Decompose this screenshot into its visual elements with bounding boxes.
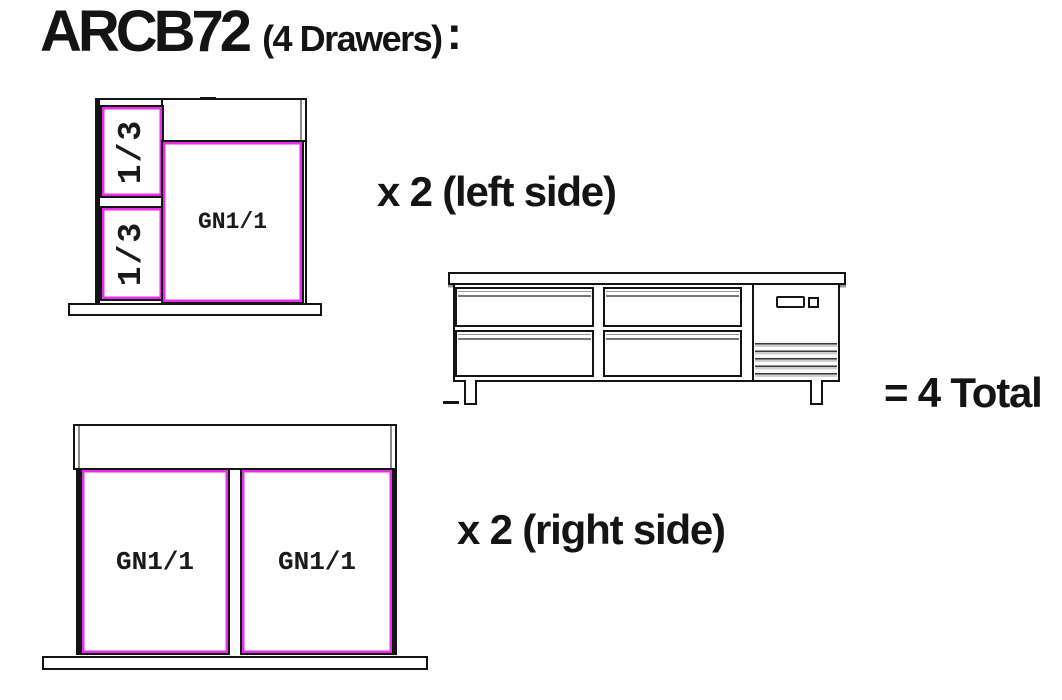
control-panel-button bbox=[808, 297, 819, 308]
pan-size-label: 1/3 bbox=[114, 119, 151, 184]
pan-slot-gn-full: GN1/1 bbox=[161, 140, 304, 304]
right-section-top-rail bbox=[73, 424, 397, 470]
drawer-handle-groove bbox=[458, 334, 591, 340]
model-qualifier: (4 Drawers) bbox=[262, 18, 442, 60]
left-section-cabinet-outline: 1/3 1/3 GN1/1 bbox=[95, 98, 307, 307]
ventilation-louvers bbox=[755, 341, 837, 379]
page-title: ARCB72 (4 Drawers) : bbox=[40, 0, 462, 64]
title-colon: : bbox=[447, 6, 462, 60]
total-count-note: = 4 Total bbox=[884, 369, 1042, 417]
pan-size-label: 1/3 bbox=[114, 221, 151, 286]
left-leg bbox=[464, 380, 477, 405]
drawer-bottom-left bbox=[455, 330, 594, 377]
stray-dash-mark bbox=[443, 401, 459, 404]
pan-slot-one-third-top: 1/3 bbox=[100, 105, 164, 198]
model-name: ARCB72 bbox=[40, 0, 248, 64]
pan-size-label: GN1/1 bbox=[278, 547, 356, 577]
left-section-diagram: 1/3 1/3 GN1/1 bbox=[68, 97, 322, 316]
drawer-top-right bbox=[603, 287, 742, 327]
left-section-base-plate bbox=[68, 303, 322, 316]
drawer-handle-groove bbox=[606, 291, 739, 297]
rail-inner-line bbox=[300, 100, 302, 140]
drawer-bottom-right bbox=[603, 330, 742, 377]
pan-size-label: GN1/1 bbox=[116, 547, 194, 577]
right-side-multiplier-note: x 2 (right side) bbox=[457, 506, 725, 554]
right-leg bbox=[810, 380, 823, 405]
right-section-diagram: GN1/1 GN1/1 bbox=[42, 422, 430, 676]
pan-slot-gn-right: GN1/1 bbox=[240, 468, 397, 655]
rail-inner-line-left bbox=[78, 426, 80, 468]
right-section-base-plate bbox=[42, 656, 428, 670]
chef-base-front-view bbox=[443, 266, 855, 412]
pan-slot-gn-left: GN1/1 bbox=[76, 468, 230, 655]
drawer-handle-groove bbox=[606, 334, 739, 340]
control-panel-display bbox=[776, 296, 805, 308]
spec-sheet-page: ARCB72 (4 Drawers) : 1/3 1/3 GN1/1 x 2 (… bbox=[0, 0, 1062, 700]
left-side-multiplier-note: x 2 (left side) bbox=[377, 168, 616, 216]
pan-slot-one-third-bottom: 1/3 bbox=[100, 206, 164, 301]
chef-base-body bbox=[453, 283, 840, 382]
compressor-compartment bbox=[752, 285, 838, 380]
rail-inner-line-right bbox=[390, 426, 392, 468]
left-section-top-rail bbox=[161, 100, 305, 142]
pan-size-label: GN1/1 bbox=[198, 209, 267, 235]
drawer-top-left bbox=[455, 287, 594, 327]
drawer-handle-groove bbox=[458, 291, 591, 297]
